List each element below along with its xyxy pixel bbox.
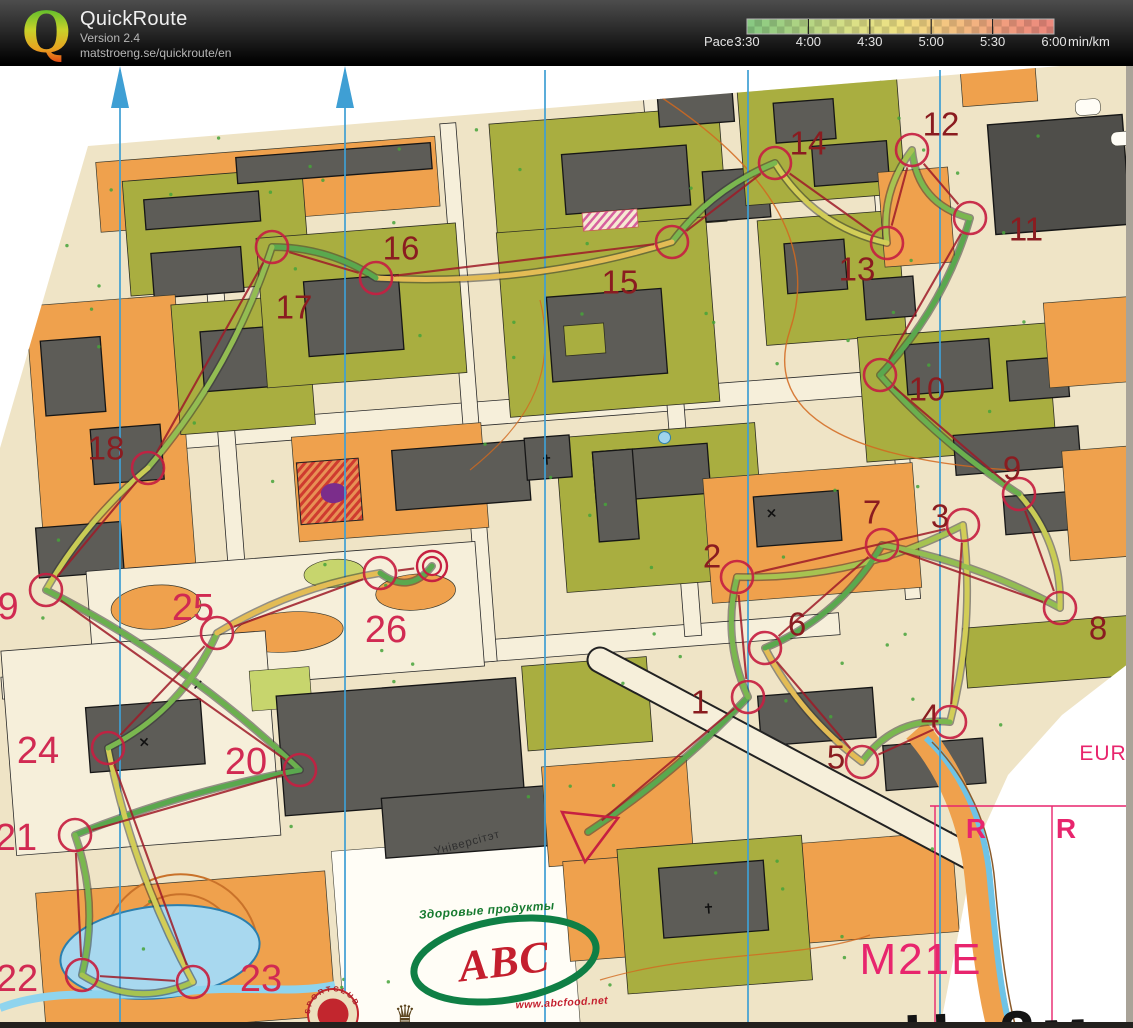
pace-bar-cell bbox=[934, 27, 942, 35]
pace-tick-label: 6:00 bbox=[1041, 34, 1066, 49]
bush-dot bbox=[714, 871, 717, 874]
control-10-number: 10 bbox=[909, 371, 946, 408]
pace-bar-cell bbox=[1032, 19, 1040, 27]
pace-bar-cell bbox=[762, 27, 770, 35]
bush-dot bbox=[897, 116, 900, 119]
control-13-number: 13 bbox=[839, 251, 876, 288]
r-label-1: R bbox=[966, 813, 986, 844]
pace-bar-cell bbox=[1047, 19, 1055, 27]
forbidden-hatch bbox=[582, 209, 638, 231]
pace-bar-cell bbox=[829, 27, 837, 35]
pace-bar-cell bbox=[784, 19, 792, 27]
control-12-number: 12 bbox=[923, 106, 960, 143]
bush-dot bbox=[712, 321, 715, 324]
pace-bar-cell bbox=[994, 27, 1002, 35]
control-19-number: 9 bbox=[0, 586, 19, 628]
bush-dot bbox=[909, 259, 912, 262]
pace-bar-cell bbox=[972, 27, 980, 35]
control-8-number: 8 bbox=[1089, 610, 1107, 647]
bush-dot bbox=[775, 859, 778, 862]
pace-bar-cell bbox=[792, 27, 800, 35]
r-label-2: R bbox=[1056, 813, 1076, 844]
pace-bar-cell bbox=[949, 19, 957, 27]
bush-dot bbox=[829, 715, 832, 718]
control-20-number: 20 bbox=[225, 741, 267, 783]
quickroute-window: ✝ bbox=[0, 0, 1133, 1028]
pace-bar-cell bbox=[964, 19, 972, 27]
control-4-number: 4 bbox=[921, 698, 939, 735]
pace-bar-cell bbox=[972, 19, 980, 27]
control-21-number: 21 bbox=[0, 817, 37, 859]
pace-bar-cell bbox=[1002, 27, 1010, 35]
bush-dot bbox=[1036, 134, 1039, 137]
bush-dot bbox=[1002, 231, 1005, 234]
scan-edge-bottom bbox=[0, 1022, 1133, 1028]
bush-dot bbox=[608, 983, 611, 986]
pace-bar-cell bbox=[874, 27, 882, 35]
bush-dot bbox=[956, 171, 959, 174]
pace-bar-cell bbox=[747, 27, 755, 35]
bush-dot bbox=[109, 188, 112, 191]
pace-bar-cell bbox=[1017, 19, 1025, 27]
pace-bar-cell bbox=[987, 27, 995, 35]
scan-edge-right bbox=[1126, 60, 1133, 1028]
pace-bar-cell bbox=[919, 27, 927, 35]
bush-dot bbox=[483, 442, 486, 445]
x-mark: × bbox=[765, 505, 778, 522]
bush-dot bbox=[142, 947, 145, 950]
bush-dot bbox=[294, 267, 297, 270]
control-2-number: 2 bbox=[703, 538, 721, 575]
church-cross-icon: ✝ bbox=[540, 452, 553, 469]
bush-dot bbox=[679, 655, 682, 658]
pace-bar-cell bbox=[769, 19, 777, 27]
control-16-number: 16 bbox=[383, 230, 420, 267]
pace-bar-cell bbox=[897, 27, 905, 35]
control-5-number: 5 bbox=[827, 739, 845, 776]
pace-bar-cell bbox=[814, 19, 822, 27]
bush-dot bbox=[271, 480, 274, 483]
bush-dot bbox=[569, 784, 572, 787]
bush-dot bbox=[916, 485, 919, 488]
bush-dot bbox=[323, 563, 326, 566]
pace-bar-cell bbox=[957, 27, 965, 35]
bush-dot bbox=[1022, 320, 1025, 323]
pace-bar-cell bbox=[837, 27, 845, 35]
bush-dot bbox=[217, 136, 220, 139]
pace-bar-cell bbox=[1024, 27, 1032, 35]
pace-bar-cell bbox=[867, 19, 875, 27]
pace-tick-label: 5:00 bbox=[919, 34, 944, 49]
pace-bar-cell bbox=[799, 27, 807, 35]
pace-bar-cell bbox=[792, 19, 800, 27]
pace-bar-cell bbox=[829, 19, 837, 27]
control-11-number: 11 bbox=[1009, 211, 1043, 248]
bush-dot bbox=[988, 410, 991, 413]
pace-bar-cell bbox=[957, 19, 965, 27]
pace-bar-cell bbox=[1017, 27, 1025, 35]
bush-dot bbox=[580, 312, 583, 315]
pace-bar-cell bbox=[754, 19, 762, 27]
pace-bar-cell bbox=[852, 27, 860, 35]
pace-bar-cell bbox=[867, 27, 875, 35]
bush-dot bbox=[892, 311, 895, 314]
pace-bar-cell bbox=[889, 19, 897, 27]
pace-bar-cell bbox=[904, 27, 912, 35]
pace-bar-cell bbox=[769, 27, 777, 35]
bush-dot bbox=[585, 242, 588, 245]
bush-dot bbox=[57, 538, 60, 541]
pace-bar-cell bbox=[822, 27, 830, 35]
pace-bar-cell bbox=[754, 27, 762, 35]
app-version: Version 2.4 bbox=[80, 31, 231, 46]
pace-bar-cell bbox=[1002, 19, 1010, 27]
bush-dot bbox=[308, 165, 311, 168]
bush-dot bbox=[931, 847, 934, 850]
pace-bar-cell bbox=[1024, 19, 1032, 27]
bush-dot bbox=[927, 363, 930, 366]
pace-bar-cell bbox=[889, 27, 897, 35]
bush-dot bbox=[704, 312, 707, 315]
title-block: QuickRoute Version 2.4 matstroeng.se/qui… bbox=[80, 8, 231, 61]
fountain bbox=[658, 431, 671, 444]
quickroute-header-bar: Q QuickRoute Version 2.4 matstroeng.se/q… bbox=[0, 0, 1133, 66]
control-23-number: 23 bbox=[240, 958, 282, 1000]
pace-tick-label: 4:00 bbox=[796, 34, 821, 49]
pace-bar-cell bbox=[1009, 19, 1017, 27]
bush-dot bbox=[97, 345, 100, 348]
control-9-number: 9 bbox=[1003, 450, 1021, 487]
bush-dot bbox=[833, 489, 836, 492]
bush-dot bbox=[784, 699, 787, 702]
pace-bar-cell bbox=[897, 19, 905, 27]
control-6-number: 6 bbox=[788, 606, 806, 643]
pace-bar-cell bbox=[814, 27, 822, 35]
bush-dot bbox=[846, 339, 849, 342]
pace-bar-cell bbox=[874, 19, 882, 27]
pace-bar-cell bbox=[1039, 19, 1047, 27]
pace-bar-cell bbox=[784, 27, 792, 35]
pace-bar-cell bbox=[1047, 27, 1055, 35]
bush-dot bbox=[650, 566, 653, 569]
pace-bar-cell bbox=[762, 19, 770, 27]
bush-dot bbox=[475, 128, 478, 131]
bush-dot bbox=[269, 191, 272, 194]
bush-dot bbox=[612, 784, 615, 787]
bush-dot bbox=[97, 284, 100, 287]
pace-bar-cell bbox=[994, 19, 1002, 27]
bush-dot bbox=[911, 697, 914, 700]
pace-legend: 3:304:004:305:005:306:00Pacemin/km bbox=[697, 0, 1130, 60]
bush-dot bbox=[604, 503, 607, 506]
control-26-number: 26 bbox=[365, 609, 407, 651]
control-14-number: 14 bbox=[790, 125, 827, 162]
pace-bar-cell bbox=[837, 19, 845, 27]
control-25-number: 25 bbox=[172, 587, 214, 629]
pace-bar-cell bbox=[979, 27, 987, 35]
logo-q-glyph: Q bbox=[22, 2, 71, 62]
pace-bar-cell bbox=[844, 19, 852, 27]
control-7-number: 7 bbox=[863, 494, 881, 531]
bush-dot bbox=[321, 179, 324, 182]
bush-dot bbox=[999, 723, 1002, 726]
bush-dot bbox=[169, 193, 172, 196]
control-24-number: 24 bbox=[17, 730, 59, 772]
pace-bar-cell bbox=[919, 19, 927, 27]
eur-label: EUR bbox=[1079, 742, 1126, 765]
pace-bar-cell bbox=[882, 19, 890, 27]
pace-bar-cell bbox=[949, 27, 957, 35]
pace-unit-label: min/km bbox=[1068, 34, 1110, 49]
pace-bar-cell bbox=[822, 19, 830, 27]
pace-bar-cell bbox=[1009, 27, 1017, 35]
bush-dot bbox=[90, 307, 93, 310]
pace-bar-cell bbox=[942, 27, 950, 35]
pace-bar-cell bbox=[799, 19, 807, 27]
pace-bar-cell bbox=[882, 27, 890, 35]
bush-dot bbox=[398, 147, 401, 150]
bush-dot bbox=[922, 148, 925, 151]
control-17-number: 17 bbox=[276, 289, 313, 326]
bush-dot bbox=[903, 633, 906, 636]
pace-bar-cell bbox=[964, 27, 972, 35]
control-1-number: 1 bbox=[691, 684, 709, 721]
bush-dot bbox=[392, 221, 395, 224]
pace-tick-label: 5:30 bbox=[980, 34, 1005, 49]
pace-tick-label: 4:30 bbox=[857, 34, 882, 49]
bush-dot bbox=[775, 362, 778, 365]
pace-bar-cell bbox=[859, 19, 867, 27]
bush-dot bbox=[652, 632, 655, 635]
x-mark: × bbox=[138, 734, 151, 751]
app-url: matstroeng.se/quickroute/en bbox=[80, 46, 231, 61]
pace-bar-cell bbox=[859, 27, 867, 35]
bush-dot bbox=[411, 662, 414, 665]
quickroute-logo: Q bbox=[20, 2, 78, 62]
bush-dot bbox=[418, 334, 421, 337]
pace-tick-label: 3:30 bbox=[734, 34, 759, 49]
bush-dot bbox=[549, 476, 552, 479]
bush-dot bbox=[621, 682, 624, 685]
bush-dot bbox=[588, 514, 591, 517]
bush-dot bbox=[289, 825, 292, 828]
bush-dot bbox=[193, 421, 196, 424]
bush-dot bbox=[840, 935, 843, 938]
bush-dot bbox=[781, 887, 784, 890]
pace-bar-cell bbox=[1039, 27, 1047, 35]
pace-bar-cell bbox=[747, 19, 755, 27]
map-canvas[interactable]: ✝ bbox=[0, 0, 1133, 1028]
pace-bar-cell bbox=[912, 19, 920, 27]
bush-dot bbox=[512, 321, 515, 324]
pace-prefix-label: Pace bbox=[704, 34, 734, 49]
pace-bar-cell bbox=[777, 19, 785, 27]
pace-bar-cell bbox=[852, 19, 860, 27]
control-18-number: 18 bbox=[88, 430, 125, 467]
pace-bar-cell bbox=[777, 27, 785, 35]
pace-bar-cell bbox=[904, 19, 912, 27]
pace-bar-cell bbox=[942, 19, 950, 27]
control-3-number: 3 bbox=[931, 498, 949, 535]
bush-dot bbox=[512, 356, 515, 359]
bush-dot bbox=[387, 980, 390, 983]
pace-bar-cell bbox=[987, 19, 995, 27]
bush-dot bbox=[518, 168, 521, 171]
class-m21e: M21E bbox=[860, 935, 983, 984]
pace-bar-cell bbox=[844, 27, 852, 35]
app-title: QuickRoute bbox=[80, 8, 231, 31]
control-15-number: 15 bbox=[602, 264, 639, 301]
bush-dot bbox=[840, 662, 843, 665]
bush-dot bbox=[392, 680, 395, 683]
pace-bar-cell bbox=[934, 19, 942, 27]
bush-dot bbox=[843, 956, 846, 959]
bush-dot bbox=[886, 643, 889, 646]
pace-bar-cell bbox=[979, 19, 987, 27]
pace-bar-cell bbox=[1032, 27, 1040, 35]
pace-bar-cell bbox=[912, 27, 920, 35]
church-cross-icon: ✝ bbox=[702, 901, 715, 918]
bush-dot bbox=[782, 555, 785, 558]
bush-dot bbox=[41, 616, 44, 619]
control-22-number: 22 bbox=[0, 958, 38, 1000]
bush-dot bbox=[689, 186, 692, 189]
bush-dot bbox=[65, 244, 68, 247]
bush-dot bbox=[527, 795, 530, 798]
